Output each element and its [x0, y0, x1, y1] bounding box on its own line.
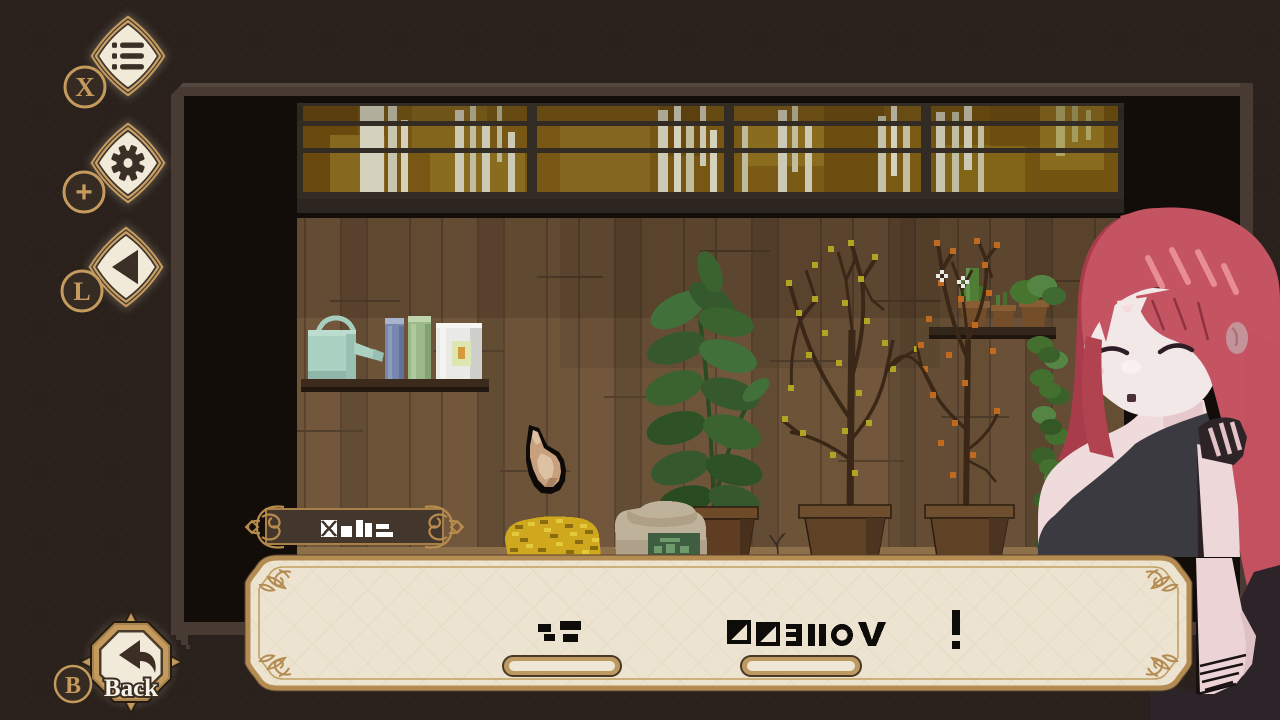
svg-text:L: L — [73, 277, 90, 306]
svg-text:B: B — [65, 673, 81, 699]
svg-text:Back: Back — [104, 675, 158, 702]
svg-text:X: X — [75, 72, 95, 102]
svg-text:+: + — [75, 176, 93, 209]
